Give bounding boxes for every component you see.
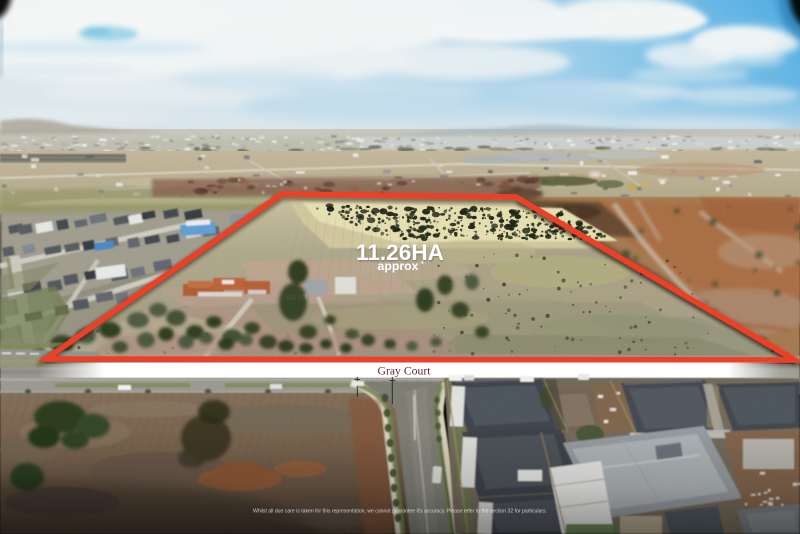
- svg-text:Whilst all due care is taken f: Whilst all due care is taken for this re…: [253, 509, 547, 515]
